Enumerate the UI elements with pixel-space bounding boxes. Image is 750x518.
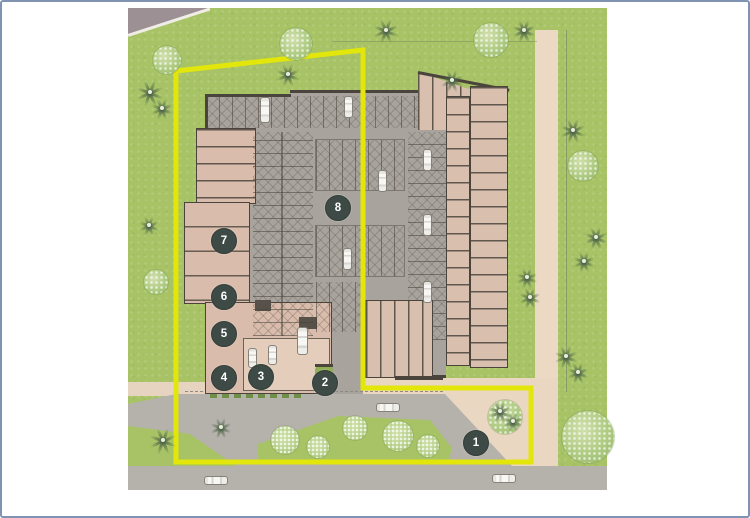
stalls-west-divider bbox=[281, 132, 283, 336]
stalls-island-2 bbox=[316, 226, 404, 276]
hedge-row bbox=[210, 394, 306, 398]
marker-label: 2 bbox=[322, 377, 328, 389]
marker-label: 1 bbox=[473, 437, 479, 449]
site-marker-6[interactable]: 6 bbox=[211, 284, 237, 310]
site-marker-1[interactable]: 1 bbox=[463, 430, 489, 456]
east-building-col-a bbox=[446, 96, 470, 366]
marker-label: 7 bbox=[221, 235, 227, 247]
marker-label: 6 bbox=[221, 291, 227, 303]
fence-line bbox=[566, 30, 567, 392]
marker-label: 4 bbox=[221, 372, 227, 384]
survey-line bbox=[332, 41, 537, 42]
marker-label: 5 bbox=[221, 328, 227, 340]
site-marker-8[interactable]: 8 bbox=[325, 195, 351, 221]
entry-gate-bar bbox=[315, 364, 333, 367]
marker-label: 3 bbox=[258, 371, 264, 383]
marker-label: 8 bbox=[335, 202, 341, 214]
east-building-bottom-bar bbox=[395, 376, 443, 380]
site-marker-7[interactable]: 7 bbox=[211, 228, 237, 254]
page-frame: 1 2 3 4 5 6 7 8 bbox=[0, 0, 750, 518]
west-building-upper bbox=[196, 128, 256, 204]
stalls-island-3 bbox=[316, 282, 362, 332]
site-marker-4[interactable]: 4 bbox=[211, 365, 237, 391]
stalls-island-1 bbox=[316, 140, 404, 190]
east-building-bottom bbox=[365, 300, 433, 378]
site-marker-2[interactable]: 2 bbox=[312, 370, 338, 396]
bottom-road bbox=[128, 466, 607, 490]
east-path bbox=[535, 30, 558, 395]
stalls-top-row bbox=[206, 96, 446, 128]
east-building-col-b bbox=[470, 86, 508, 368]
stalls-west-column bbox=[253, 132, 313, 336]
site-marker-3[interactable]: 3 bbox=[248, 364, 274, 390]
site-marker-5[interactable]: 5 bbox=[211, 321, 237, 347]
